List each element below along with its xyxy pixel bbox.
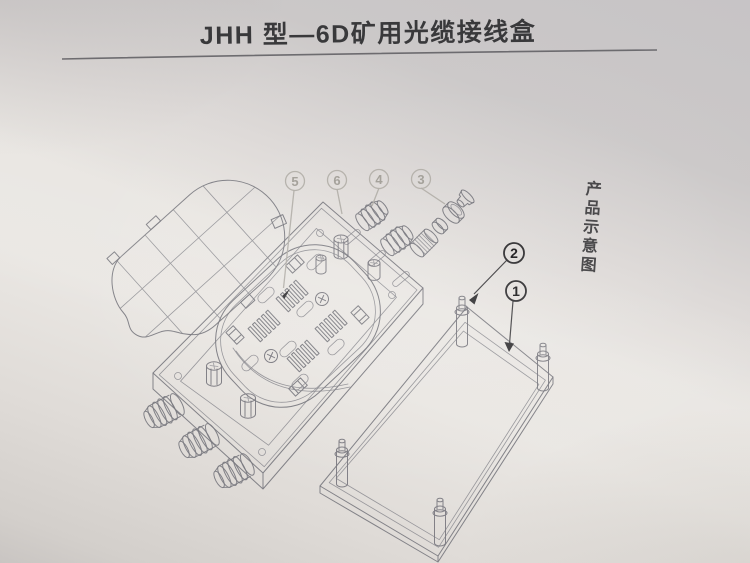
callout-4-label: 4 <box>375 172 383 187</box>
round-standoff-screw <box>316 255 326 274</box>
phillips-screw <box>262 347 279 364</box>
callout-2-label: 2 <box>510 245 518 261</box>
splice-holder-comb <box>315 310 347 342</box>
callout-6: 6 <box>328 171 347 190</box>
corner-stud <box>455 296 469 347</box>
splice-holder-comb <box>248 310 280 342</box>
hex-standoff <box>207 362 222 386</box>
photographed-catalog-page: JHH 型—6D矿用光缆接线盒 产品示意图 <box>0 0 750 563</box>
splice-holder-comb <box>287 340 319 372</box>
callout-5: 5 <box>286 172 305 191</box>
callout-5-label: 5 <box>291 174 298 189</box>
cable-gland-left-1 <box>140 390 188 433</box>
exploded-view-diagram: 5 6 4 3 2 1 <box>0 0 750 563</box>
callout-3: 3 <box>412 170 431 189</box>
corner-stud <box>335 439 349 487</box>
title-underline <box>62 50 657 59</box>
round-standoff-screw <box>368 260 380 281</box>
cable-gland-left-2 <box>175 420 223 463</box>
callout-6-label: 6 <box>333 173 340 188</box>
callout-3-label: 3 <box>417 172 424 187</box>
gland-cap <box>453 188 476 211</box>
phillips-screw <box>313 290 330 307</box>
hex-standoff <box>241 394 256 418</box>
gland-knurled-nut <box>408 227 440 259</box>
cable-gland-left-3 <box>210 450 258 493</box>
callout-1: 1 <box>506 281 526 301</box>
callout-4: 4 <box>370 170 389 189</box>
callout-2: 2 <box>504 243 524 263</box>
callout-1-label: 1 <box>512 283 520 299</box>
splice-holder-comb <box>276 280 308 312</box>
cable-gland-top-1 <box>352 196 392 234</box>
